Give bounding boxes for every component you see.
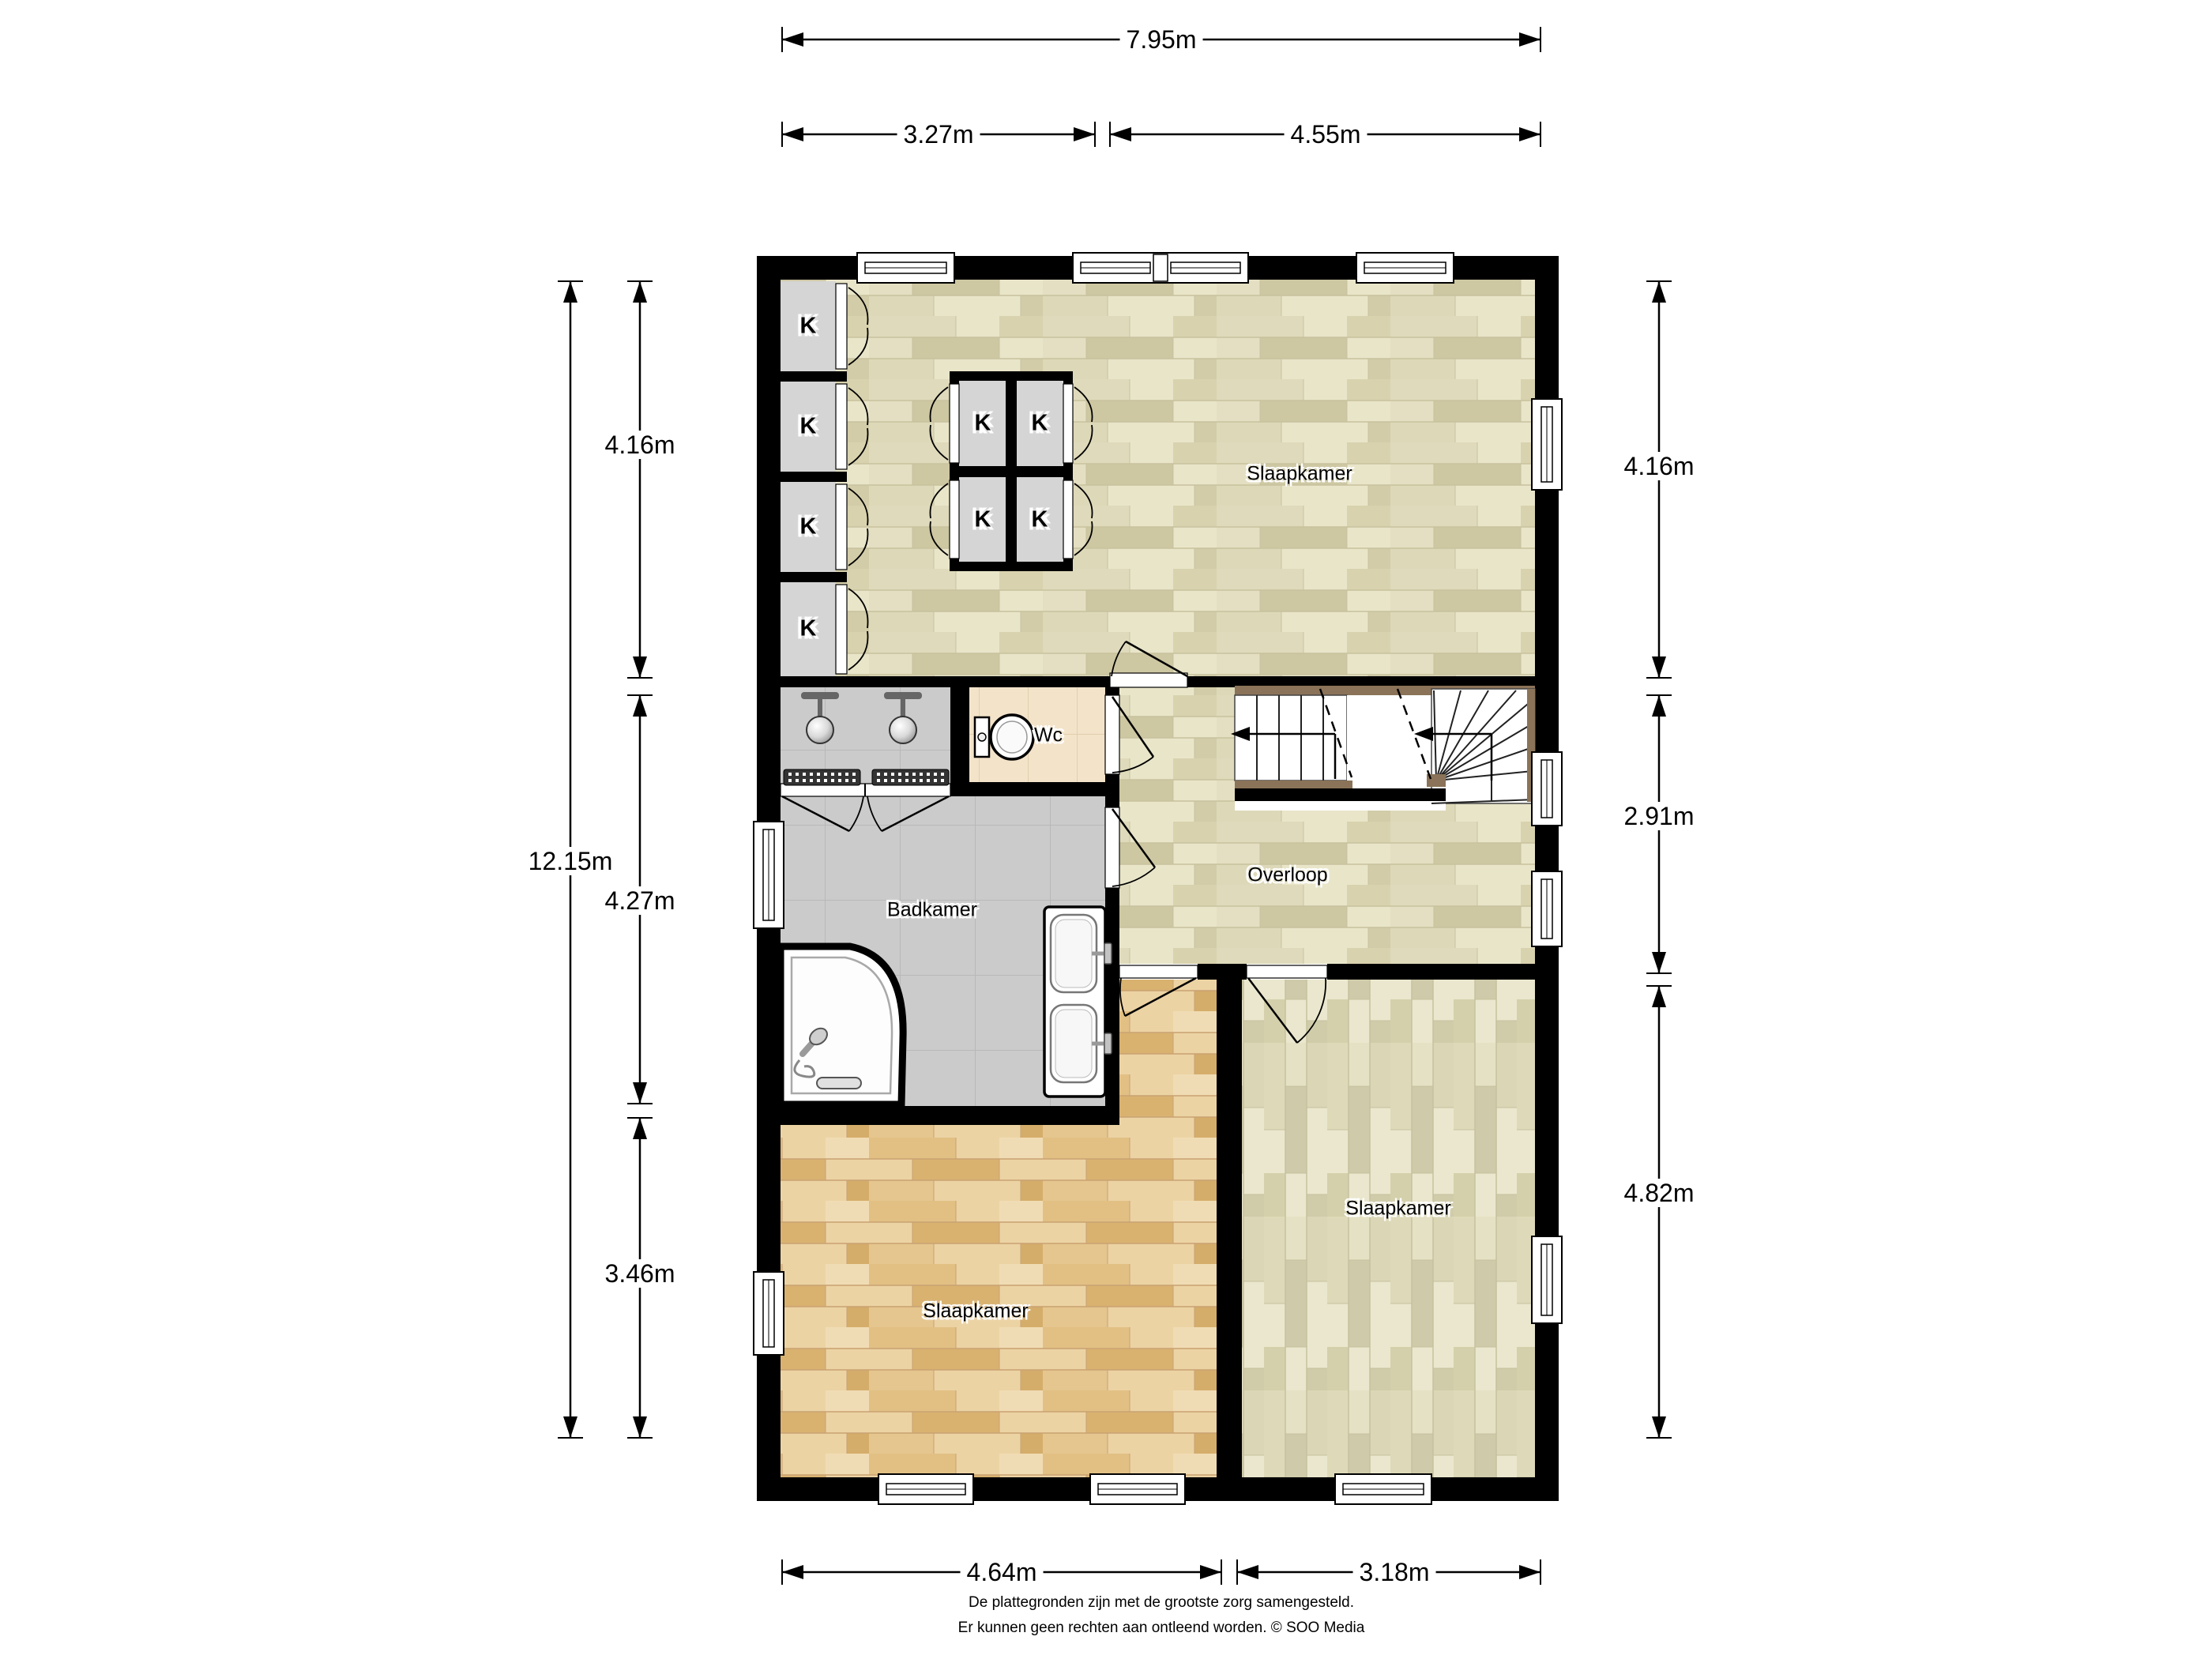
room-label-wc: Wc — [1034, 724, 1063, 747]
bathtub — [781, 946, 903, 1104]
dim-label-bottom-right: 3.18m — [1353, 1558, 1436, 1586]
dim-label-right-bottom: 4.82m — [1618, 1179, 1701, 1207]
floor-plan-svg — [0, 0, 2212, 1659]
window — [857, 253, 954, 283]
floor-bedroom-top — [781, 280, 1535, 676]
wall-landing-bottom-b — [1327, 964, 1535, 980]
window — [1532, 399, 1562, 490]
window — [1532, 752, 1562, 826]
stair-under-wall — [1235, 788, 1446, 801]
window — [1532, 871, 1562, 946]
closet-label: K — [975, 507, 991, 533]
toilet — [975, 715, 1033, 759]
room-label-landing: Overloop — [1247, 864, 1327, 887]
closet-door-jamb — [1063, 480, 1073, 559]
wall-closet-separator — [757, 371, 847, 382]
footer-disclaimer-line1: De plattegronden zijn met de grootste zo… — [969, 1594, 1354, 1612]
window — [1532, 1236, 1562, 1323]
wall-closet-separator — [757, 472, 847, 482]
stair-void — [1347, 695, 1431, 788]
stair-winder — [1431, 689, 1535, 803]
wall-wc-bottom — [950, 782, 1119, 796]
dim-label-right-top: 4.16m — [1618, 452, 1701, 480]
closet-label: K — [800, 314, 817, 340]
closet-label: K — [800, 514, 817, 540]
wall-shower-wc — [950, 676, 969, 796]
wall-bath-right-c — [1105, 888, 1119, 1114]
dim-label-bottom-left: 4.64m — [961, 1558, 1044, 1586]
stair-flight — [1235, 695, 1347, 781]
dim-label-left-bottom: 3.46m — [599, 1259, 682, 1288]
closet-door-jamb — [836, 585, 847, 674]
window — [1090, 1474, 1185, 1504]
dim-label-right-mid: 2.91m — [1618, 802, 1701, 830]
closet-label: K — [1032, 507, 1048, 533]
dim-label-left-total: 12.15m — [522, 847, 619, 875]
dim-label-top-total: 7.95m — [1120, 25, 1203, 54]
wall-bedroom-landing-right — [1187, 676, 1535, 687]
wall-bath-bottom — [757, 1106, 1119, 1125]
wall-bedroom-landing-left — [781, 676, 1110, 687]
window — [1073, 253, 1248, 283]
room-label-bedroom-bottom-right: Slaapkamer — [1345, 1198, 1450, 1221]
wall-between-bedrooms — [1217, 964, 1242, 1477]
stair-under-strip — [1235, 801, 1446, 811]
floors — [781, 280, 1535, 1477]
floorplan-canvas: 7.95m 3.27m 4.55m 12.15m 4.16m 4.27m 3.4… — [0, 0, 2212, 1659]
stairs — [1231, 686, 1535, 811]
stair-stringer-bottom — [1235, 781, 1352, 788]
window — [1356, 253, 1454, 283]
window — [754, 1272, 784, 1355]
closet-label: K — [1032, 411, 1048, 437]
room-label-bedroom-bottom-left: Slaapkamer — [923, 1300, 1028, 1323]
closet-door-jamb — [836, 384, 847, 469]
closet-door-jamb — [950, 384, 959, 463]
room-label-bathroom: Badkamer — [887, 899, 977, 922]
window — [878, 1474, 973, 1504]
dim-label-top-right: 4.55m — [1285, 120, 1367, 149]
closet-label: K — [800, 414, 817, 440]
dim-label-left-top: 4.16m — [599, 431, 682, 459]
wall-bath-right-b — [1105, 774, 1119, 807]
closet-door-jamb — [1063, 384, 1073, 463]
footer-disclaimer-line2: Er kunnen geen rechten aan ontleend word… — [958, 1619, 1365, 1637]
room-label-bedroom-top: Slaapkamer — [1247, 463, 1352, 486]
window — [754, 822, 784, 928]
closet-label: K — [800, 616, 817, 642]
dim-label-left-mid: 4.27m — [599, 886, 682, 915]
double-sink — [1044, 907, 1112, 1097]
shower-drain — [784, 769, 860, 785]
floor-bedroom-bottom-right — [1242, 980, 1535, 1477]
shower-drain — [872, 769, 949, 785]
window — [1335, 1474, 1431, 1504]
floor-bedroom-bottom-left-notch — [1119, 980, 1217, 1125]
wall-closet-separator — [757, 572, 847, 582]
closet-label: K — [975, 411, 991, 437]
dim-label-top-left: 3.27m — [897, 120, 980, 149]
closet-door-jamb — [836, 284, 847, 369]
closet-door-jamb — [950, 480, 959, 559]
closet-door-jamb — [836, 484, 847, 570]
